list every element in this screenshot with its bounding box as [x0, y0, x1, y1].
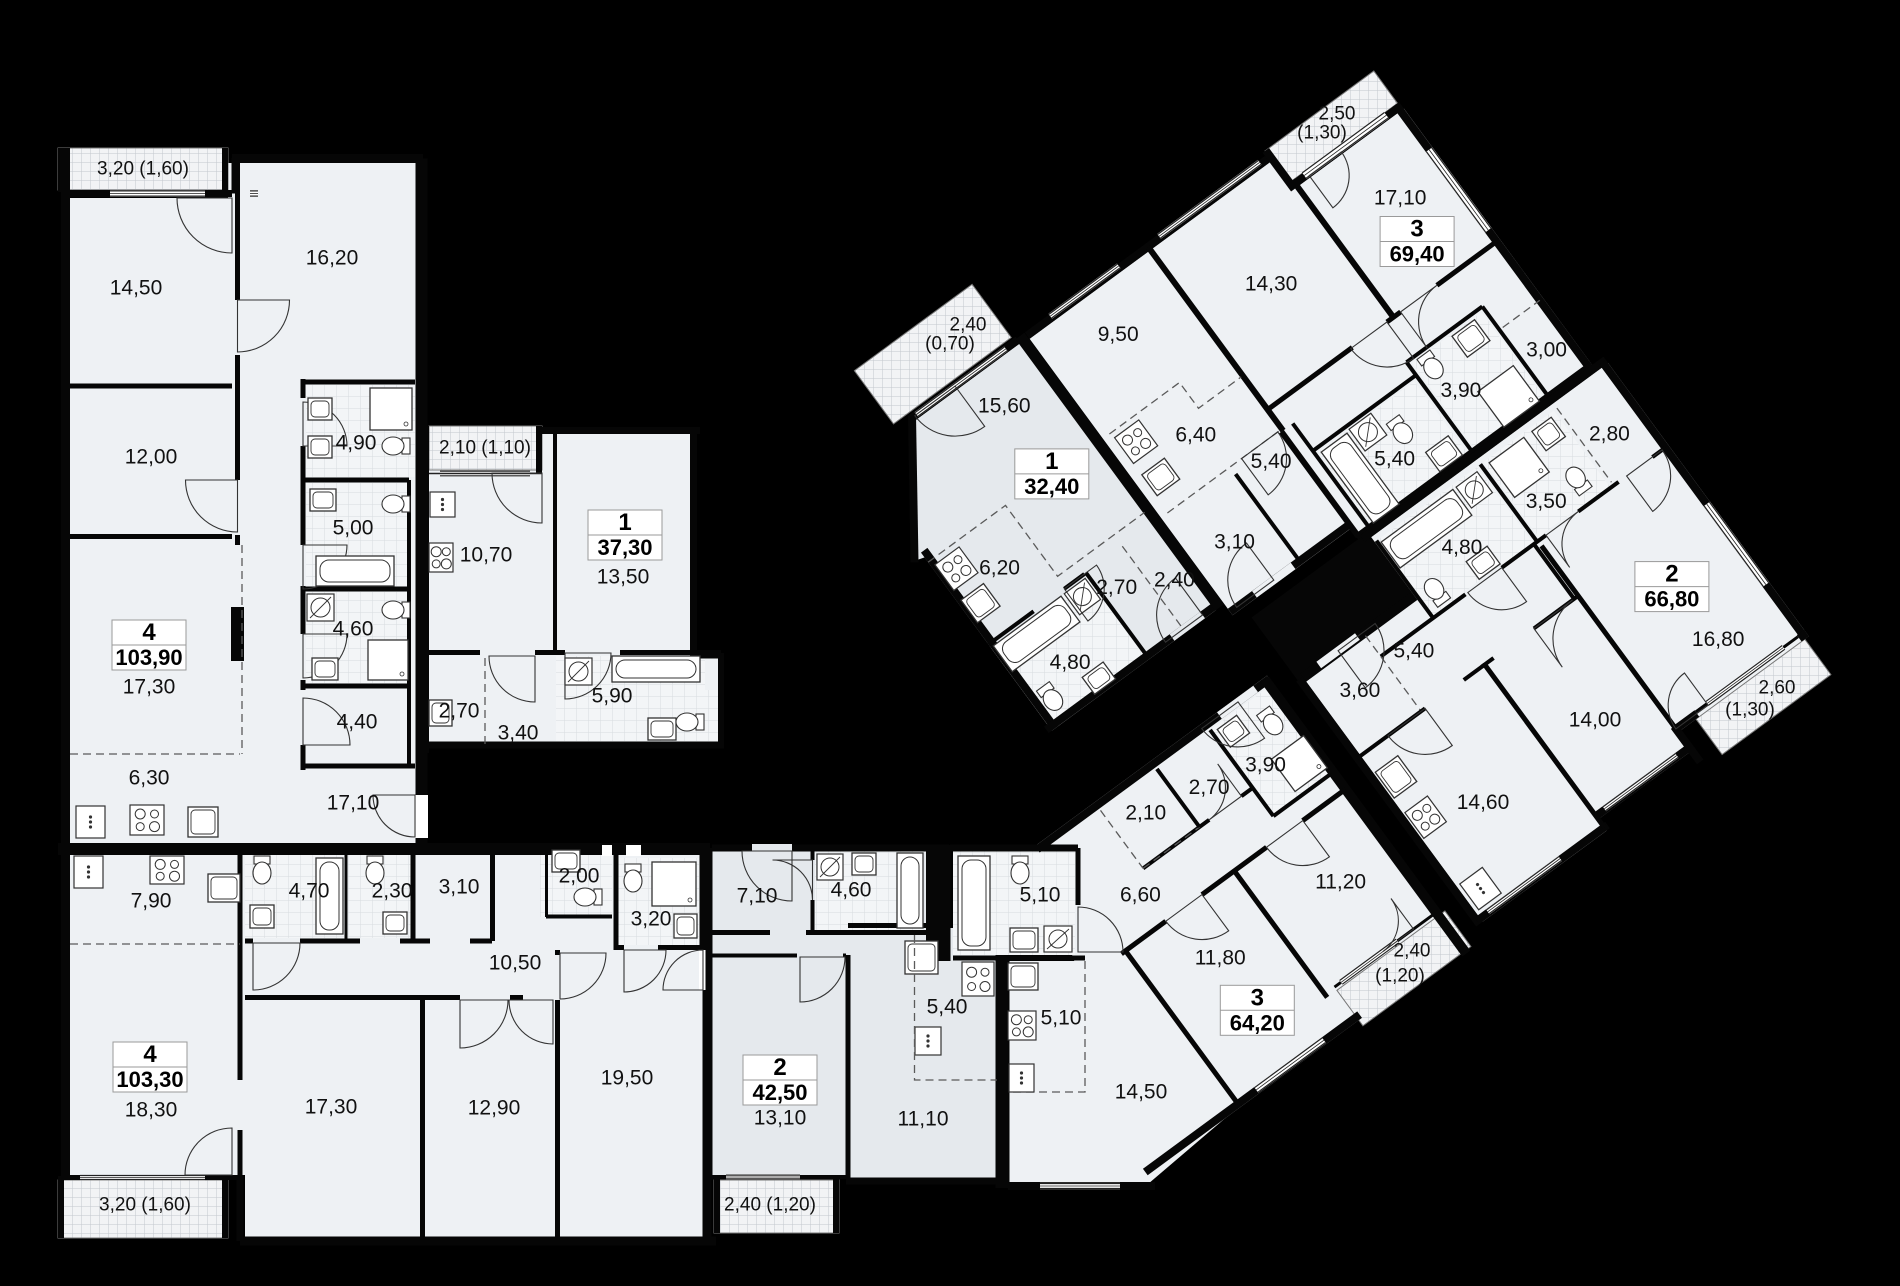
svg-text:3,20: 3,20: [631, 908, 672, 931]
svg-text:10,70: 10,70: [460, 544, 513, 567]
svg-text:3,10: 3,10: [1214, 530, 1255, 553]
svg-text:4,90: 4,90: [336, 432, 377, 455]
svg-text:6,60: 6,60: [1120, 884, 1161, 907]
svg-text:2,30: 2,30: [372, 880, 413, 903]
svg-text:14,00: 14,00: [1569, 709, 1622, 732]
svg-text:4,80: 4,80: [1441, 536, 1482, 559]
svg-text:3,60: 3,60: [1339, 679, 1380, 702]
svg-text:37,30: 37,30: [597, 535, 652, 560]
svg-text:16,20: 16,20: [306, 247, 359, 270]
svg-text:103,90: 103,90: [115, 645, 182, 670]
svg-text:(1,20): (1,20): [1375, 966, 1425, 987]
svg-text:5,90: 5,90: [592, 685, 633, 708]
svg-text:2,70: 2,70: [439, 700, 480, 723]
svg-text:3,20 (1,60): 3,20 (1,60): [99, 1195, 191, 1216]
svg-text:2,80: 2,80: [1589, 423, 1630, 446]
svg-text:3,20 (1,60): 3,20 (1,60): [97, 159, 189, 180]
svg-text:2: 2: [1665, 561, 1678, 588]
svg-text:3,90: 3,90: [1245, 753, 1286, 776]
svg-text:3,40: 3,40: [498, 722, 539, 745]
svg-text:6,40: 6,40: [1175, 424, 1216, 447]
svg-text:4,70: 4,70: [289, 880, 330, 903]
svg-text:13,50: 13,50: [597, 566, 650, 589]
svg-text:2,10 (1,10): 2,10 (1,10): [439, 438, 531, 459]
svg-text:17,10: 17,10: [327, 792, 380, 815]
svg-text:17,10: 17,10: [1374, 187, 1427, 210]
svg-text:2,70: 2,70: [1189, 776, 1230, 799]
svg-text:2,00: 2,00: [559, 865, 600, 888]
svg-text:6,20: 6,20: [979, 557, 1020, 580]
svg-text:5,40: 5,40: [927, 996, 968, 1019]
svg-text:3: 3: [1410, 216, 1423, 243]
svg-text:17,30: 17,30: [305, 1096, 358, 1119]
svg-text:7,10: 7,10: [737, 885, 778, 908]
svg-text:11,10: 11,10: [898, 1108, 949, 1131]
svg-text:5,40: 5,40: [1251, 450, 1292, 473]
svg-text:13,10: 13,10: [754, 1107, 807, 1130]
svg-text:2: 2: [773, 1054, 786, 1081]
svg-text:10,50: 10,50: [489, 952, 542, 975]
svg-text:5,10: 5,10: [1041, 1007, 1082, 1030]
svg-text:5,40: 5,40: [1374, 448, 1415, 471]
svg-text:5,10: 5,10: [1020, 884, 1061, 907]
svg-text:2,40: 2,40: [1394, 941, 1431, 962]
svg-text:(1,30): (1,30): [1297, 123, 1347, 144]
svg-text:32,40: 32,40: [1024, 474, 1079, 499]
svg-text:2,60: 2,60: [1759, 678, 1796, 699]
svg-text:15,60: 15,60: [978, 394, 1031, 417]
svg-text:2,40 (1,20): 2,40 (1,20): [724, 1195, 816, 1216]
svg-text:4,60: 4,60: [333, 618, 374, 641]
svg-text:14,50: 14,50: [1115, 1081, 1168, 1104]
svg-text:3,10: 3,10: [439, 876, 480, 899]
svg-text:3,50: 3,50: [1526, 490, 1567, 513]
svg-text:(0,70): (0,70): [925, 334, 975, 355]
svg-text:18,30: 18,30: [125, 1099, 178, 1122]
svg-text:7,90: 7,90: [131, 890, 172, 913]
svg-text:12,00: 12,00: [125, 446, 178, 469]
svg-text:6,30: 6,30: [129, 767, 170, 790]
svg-text:11,20: 11,20: [1315, 871, 1366, 894]
svg-text:14,60: 14,60: [1457, 791, 1510, 814]
svg-text:14,50: 14,50: [110, 277, 163, 300]
svg-text:4: 4: [143, 1041, 157, 1068]
svg-text:3,90: 3,90: [1440, 379, 1481, 402]
svg-text:2,50: 2,50: [1319, 104, 1356, 125]
svg-text:66,80: 66,80: [1644, 587, 1699, 612]
svg-text:2,70: 2,70: [1096, 576, 1137, 599]
svg-text:19,50: 19,50: [601, 1067, 654, 1090]
svg-text:16,80: 16,80: [1692, 628, 1745, 651]
svg-text:12,90: 12,90: [468, 1097, 521, 1120]
svg-text:9,50: 9,50: [1098, 323, 1139, 346]
svg-text:1: 1: [618, 509, 631, 536]
svg-text:103,30: 103,30: [116, 1067, 183, 1092]
svg-text:3,00: 3,00: [1526, 339, 1567, 362]
svg-text:5,00: 5,00: [333, 517, 374, 540]
svg-text:64,20: 64,20: [1230, 1010, 1285, 1035]
svg-text:14,30: 14,30: [1245, 273, 1298, 296]
svg-text:(1,30): (1,30): [1725, 700, 1775, 721]
svg-text:42,50: 42,50: [752, 1080, 807, 1105]
svg-text:3: 3: [1251, 984, 1264, 1011]
svg-text:2,10: 2,10: [1125, 802, 1166, 825]
svg-text:4: 4: [142, 619, 156, 646]
svg-text:17,30: 17,30: [123, 676, 176, 699]
svg-text:2,40: 2,40: [1154, 568, 1195, 591]
svg-text:11,80: 11,80: [1195, 947, 1246, 970]
svg-text:69,40: 69,40: [1390, 242, 1445, 267]
svg-text:2,40: 2,40: [950, 315, 987, 336]
svg-text:4,80: 4,80: [1050, 651, 1091, 674]
svg-text:4,60: 4,60: [831, 879, 872, 902]
svg-text:1: 1: [1045, 448, 1058, 475]
svg-text:4,40: 4,40: [337, 711, 378, 734]
svg-text:5,40: 5,40: [1393, 639, 1434, 662]
